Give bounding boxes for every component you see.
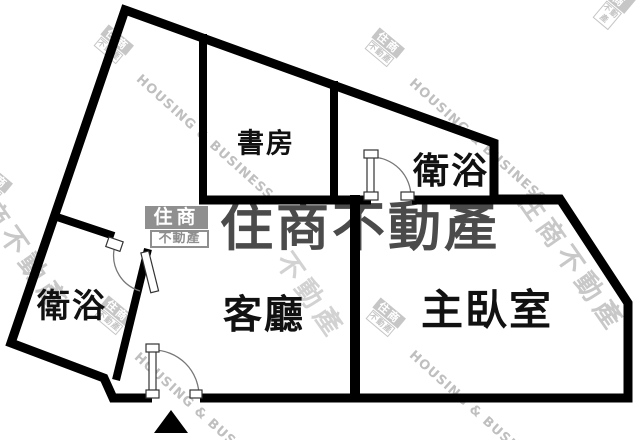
room-label-bath-upper: 衛浴 <box>413 142 489 194</box>
room-label-master: 主臥室 <box>421 277 553 338</box>
room-label-bath-lower: 衛浴 <box>37 279 107 327</box>
floorplan-stage: 住商 不動產 住商 不動產 住商 不動產 住商 不動產 住商 不動產 住商 不動… <box>0 0 640 440</box>
room-label-study: 書房 <box>237 122 295 161</box>
room-label-living: 客廳 <box>223 284 305 340</box>
room-label-layer: 書房 衛浴 衛浴 客廳 主臥室 <box>0 0 640 440</box>
